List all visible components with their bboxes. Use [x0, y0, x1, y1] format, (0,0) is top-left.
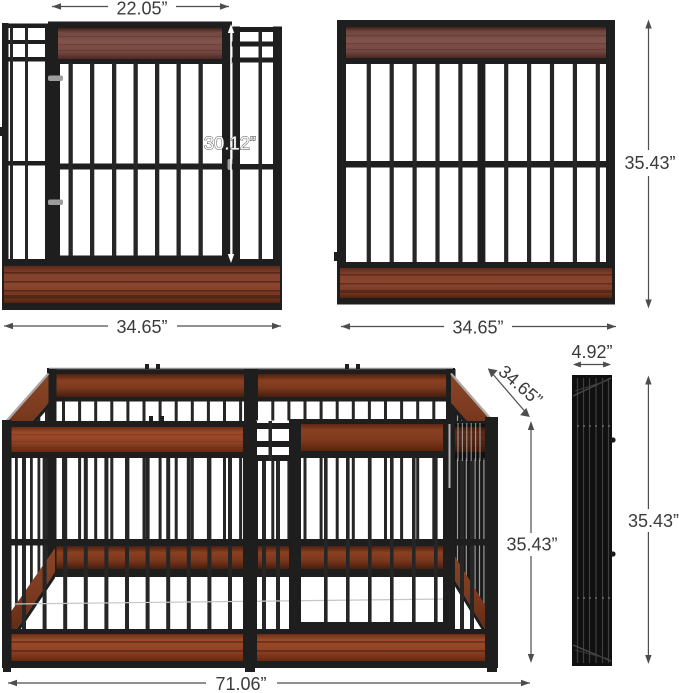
svg-text:35.43”: 35.43” — [628, 511, 679, 531]
svg-text:35.43”: 35.43” — [506, 535, 557, 555]
svg-text:34.65”: 34.65” — [116, 317, 167, 337]
svg-text:34.65”: 34.65” — [452, 318, 503, 338]
svg-text:30.12”: 30.12” — [204, 133, 256, 154]
svg-text:22.05”: 22.05” — [116, 0, 167, 19]
svg-text:4.92”: 4.92” — [571, 342, 612, 362]
svg-text:71.06”: 71.06” — [215, 674, 266, 693]
svg-text:35.43”: 35.43” — [624, 153, 675, 173]
